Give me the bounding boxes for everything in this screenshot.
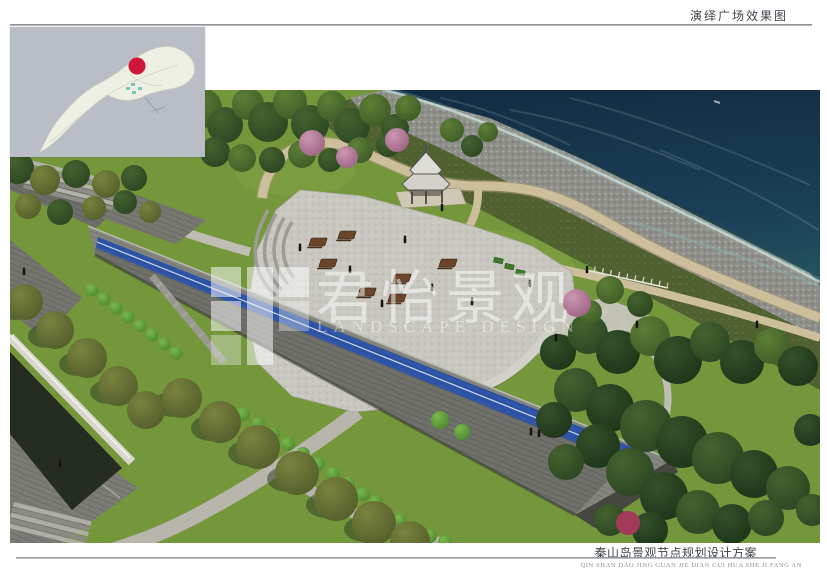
project-title-pinyin: QIN SHAN DAO JING GUAN JIE DIAN GUI HUA … xyxy=(581,562,803,569)
presentation-board: 演绎广场效果图 xyxy=(0,0,827,585)
rendering-image: 君怡景观 LANDSCAPE DESIGN xyxy=(10,90,820,543)
location-marker xyxy=(129,58,146,75)
bottom-rule xyxy=(16,557,776,559)
page-title: 演绎广场效果图 xyxy=(690,7,788,24)
top-rule xyxy=(10,24,812,26)
location-inset-map xyxy=(10,27,205,157)
rendering-scene xyxy=(10,90,820,543)
